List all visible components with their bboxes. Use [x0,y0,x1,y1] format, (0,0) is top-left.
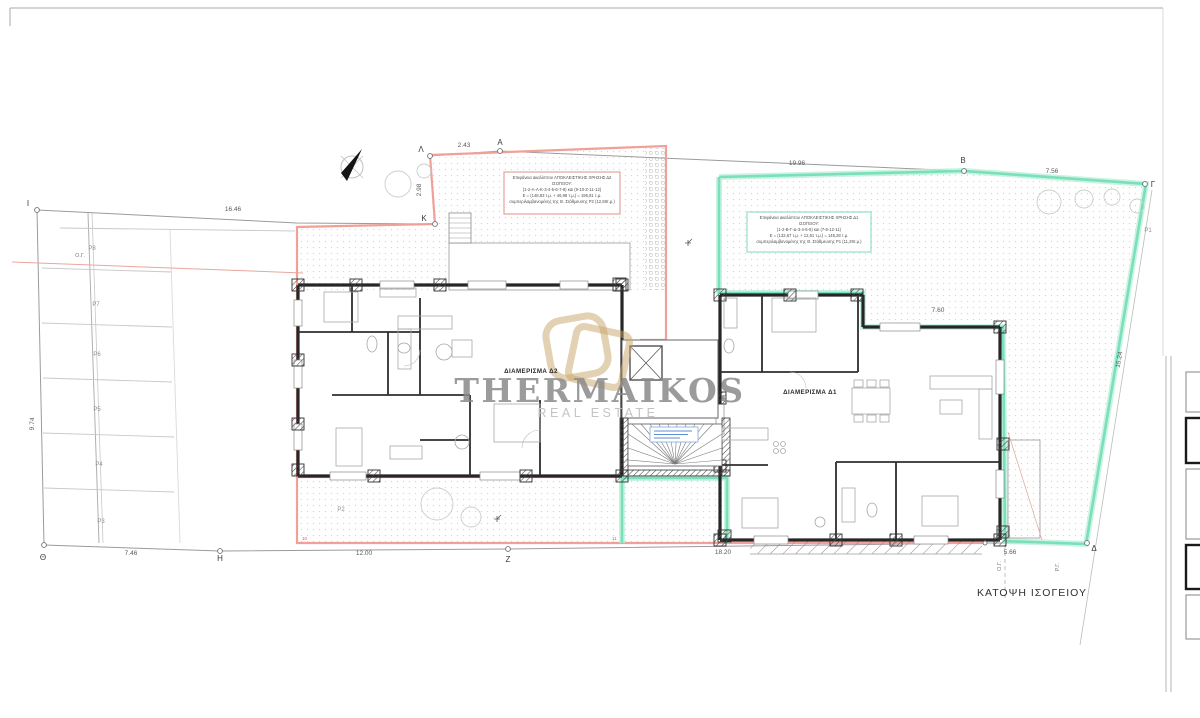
point-label-delta: Δ [1091,544,1097,553]
dim-12-00: 12.00 [356,550,373,557]
og-label-west: Ο.Γ. [75,253,85,259]
point-label-alpha: Α [497,138,503,147]
note-d2-line1: Επιφάνεια ακαλύπτου ΑΠΟΚΛΕΙΣΤΙΚΗΣ ΧΡΗΣΗΣ… [513,175,612,180]
dim-7-56: 7.56 [1046,168,1059,175]
dim-2-98: 2.98 [416,183,423,196]
parking-label-p4: P4 [95,462,103,468]
stair-blue-note [650,427,698,442]
apartment-d1-label: ΔΙΑΜΕΡΙΣΜΑ Δ1 [783,389,837,396]
dim-18-20: 18.20 [715,549,732,556]
floor-plan-drawing: THERMAIKOS REAL ESTATE Επιφάνεια ακαλύπτ… [0,0,1200,718]
rg-label-south: Ρ.Γ. [1055,562,1061,571]
point-label-kappa: Κ [421,214,427,223]
parking-label-p3: P3 [97,519,105,525]
note-d1-line1: Επιφάνεια ακαλύπτου ΑΠΟΚΛΕΙΣΤΙΚΗΣ ΧΡΗΣΗΣ… [760,215,859,220]
note-d1-line5: συμπεριλαμβανομένης της Θ. Στάθμευσης P1… [756,239,862,244]
parking-label-p8: P8 [88,246,96,252]
note-d2-line2: ΙΣΟΓΕΙΟΥ: [552,181,572,186]
point-label-eta: Η [217,554,223,563]
apartment-d2-label: ΔΙΑΜΕΡΙΣΜΑ Δ2 [504,368,558,375]
point-label-zeta: Ζ [506,555,511,564]
note-d1-line3: (1-2-Β-Γ-Δ-3-4-5-6) και (7-8-12-11) [777,227,842,232]
note-d1-line2: ΙΣΟΓΕΙΟΥ: [799,221,819,226]
note-d1-line4: Ε = (132,67 τ.μ. + 12,61 τ.μ.) = 145,28 … [770,233,849,238]
watermark-subtitle: REAL ESTATE [538,406,659,420]
dim-19-96: 19.96 [789,160,806,167]
note-box-d1: Επιφάνεια ακαλύπτου ΑΠΟΚΛΕΙΣΤΙΚΗΣ ΧΡΗΣΗΣ… [747,212,871,252]
parking-label-p5: P5 [93,407,101,413]
note-d2-line4: Ε = (148,83 τ.μ. + 46,98 τ.μ.) = 195,81 … [523,193,602,198]
point-label-beta: Β [960,156,965,165]
point-label-lambda: Λ [418,145,424,154]
point-label-i: Ι [27,199,29,208]
dim-9-74: 9.74 [29,417,36,430]
point-label-gamma: Γ [1151,180,1156,189]
parking-label-p1: P1 [1144,228,1152,234]
parking-label-p6: P6 [93,352,101,358]
dim-16-46: 16.46 [225,206,242,213]
parking-label-p2: P2 [337,507,345,513]
point-label-theta: Θ [40,553,46,562]
note-d2-line3: (1-2-Α-Λ-Κ-3-4-5-6-7-8) και (9-10-Ζ-11-1… [523,187,602,192]
vertex-mark-11: 11 [612,536,617,541]
vertex-mark-10: 10 [302,536,308,541]
dim-5-66: 5.66 [1004,549,1017,556]
og-label-south: Ο.Γ. [997,561,1003,571]
note-box-d2: Επιφάνεια ακαλύπτου ΑΠΟΚΛΕΙΣΤΙΚΗΣ ΧΡΗΣΗΣ… [504,172,620,214]
vegetation-strip [645,148,666,290]
note-d2-line5: συμπεριλαμβανομένης της Θ. Στάθμευσης P2… [509,199,615,204]
dim-7-46: 7.46 [125,550,138,557]
parking-label-p7: P7 [92,302,100,308]
dim-2-43: 2.43 [458,142,471,149]
view-title: ΚΑΤΟΨΗ ΙΣΟΓΕΙΟΥ [977,587,1087,599]
dim-7-60: 7.60 [932,307,945,314]
watermark-brand: THERMAIKOS [454,371,745,410]
